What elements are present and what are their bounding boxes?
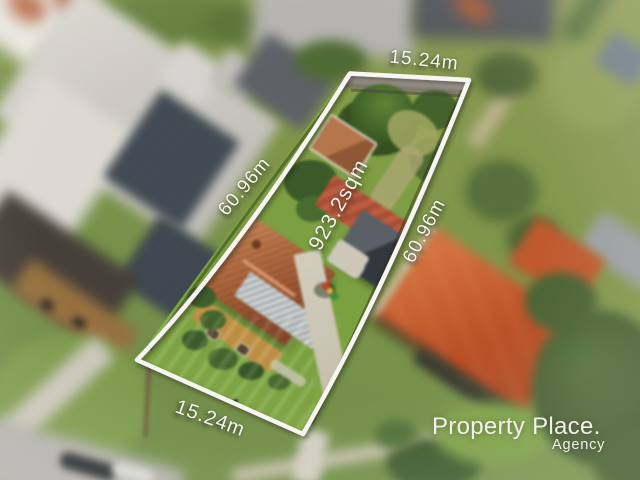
dimension-label-top-width: 15.24m (388, 46, 459, 75)
tree-right-of-corner (475, 52, 537, 98)
bird-on-lawn (233, 399, 238, 403)
aerial-property-photo: 15.24m 60.96m 923.2sqm 60.96m 15.24m Pro… (0, 0, 640, 480)
tree-right-strip-1 (465, 160, 537, 222)
playset-green (330, 293, 339, 300)
left-fence-bush-1 (188, 286, 216, 308)
driveway-apron (291, 428, 329, 480)
agency-logo-division: Agency (552, 437, 605, 453)
tree-right-lobe (525, 272, 597, 332)
street-tree-2 (375, 420, 417, 450)
